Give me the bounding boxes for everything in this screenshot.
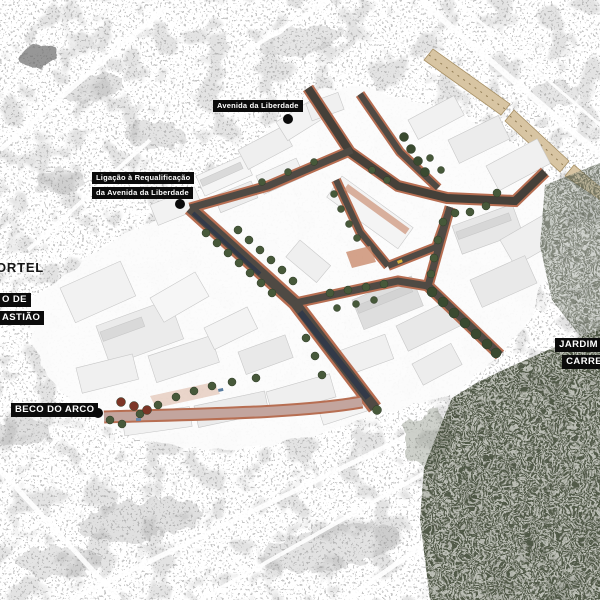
marker-dot-ligacao <box>175 199 185 209</box>
label-cortel: ORTEL <box>0 260 44 275</box>
label-avenida-da-liberdade: Avenida da Liberdade <box>213 100 303 112</box>
label-jardim-line1: JARDIM <box>555 338 600 352</box>
label-sebastiao-line1: O DE <box>0 293 31 307</box>
label-ligacao-line1: Ligação à Requalificação <box>92 172 194 184</box>
marker-dot-beco <box>93 408 103 418</box>
label-jardim-line2: CARREI <box>562 355 600 369</box>
masterplan-map: Avenida da Liberdade Ligação à Requalifi… <box>0 0 600 600</box>
label-sebastiao-line2: ASTIÃO <box>0 311 44 325</box>
label-ligacao-line2: da Avenida da Liberdade <box>92 187 193 199</box>
marker-dot-avenida <box>283 114 293 124</box>
label-beco-do-arco: BECO DO ARCO <box>11 403 98 417</box>
map-artwork <box>0 0 600 600</box>
